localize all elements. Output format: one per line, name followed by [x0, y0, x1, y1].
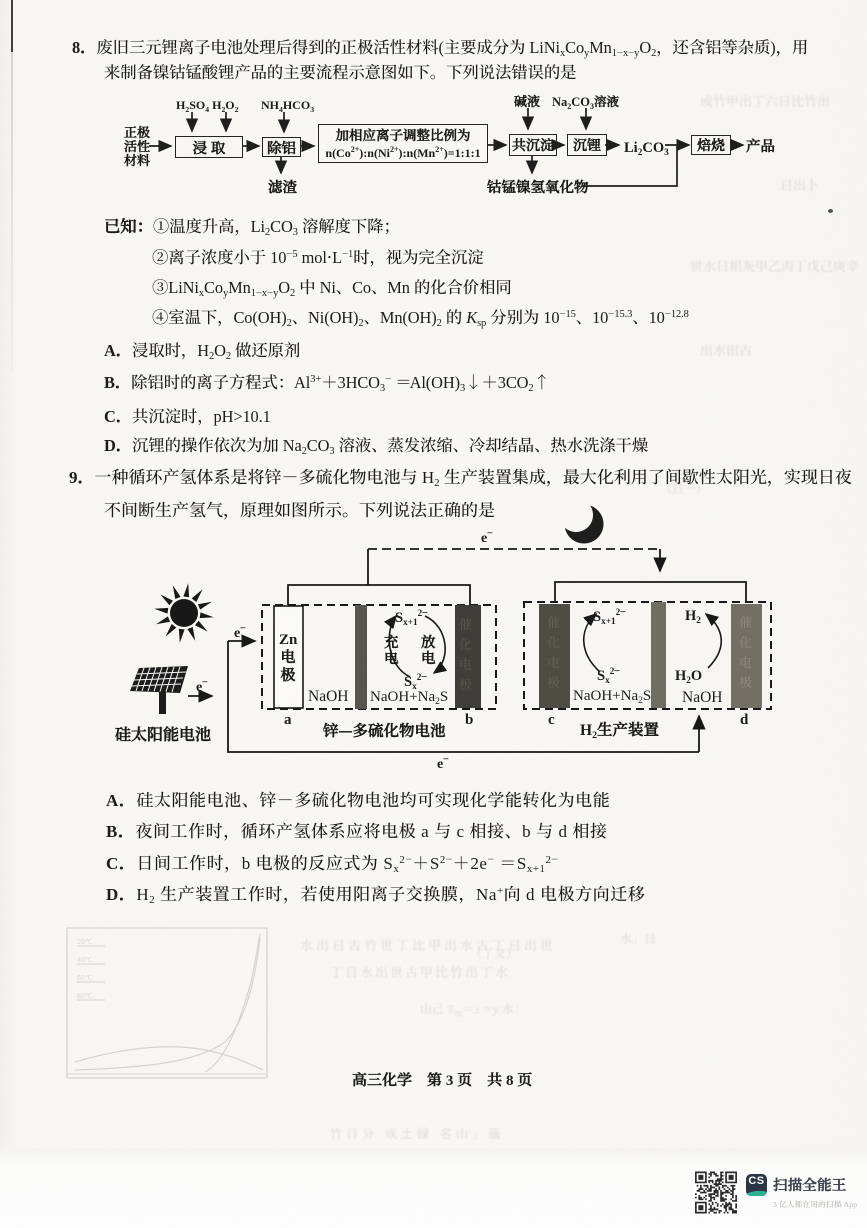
svg-text:60℃: 60℃ — [77, 975, 93, 982]
svg-text:80℃: 80℃ — [77, 993, 93, 1000]
svg-text:40℃: 40℃ — [77, 957, 93, 964]
svg-text:20℃: 20℃ — [77, 939, 93, 946]
